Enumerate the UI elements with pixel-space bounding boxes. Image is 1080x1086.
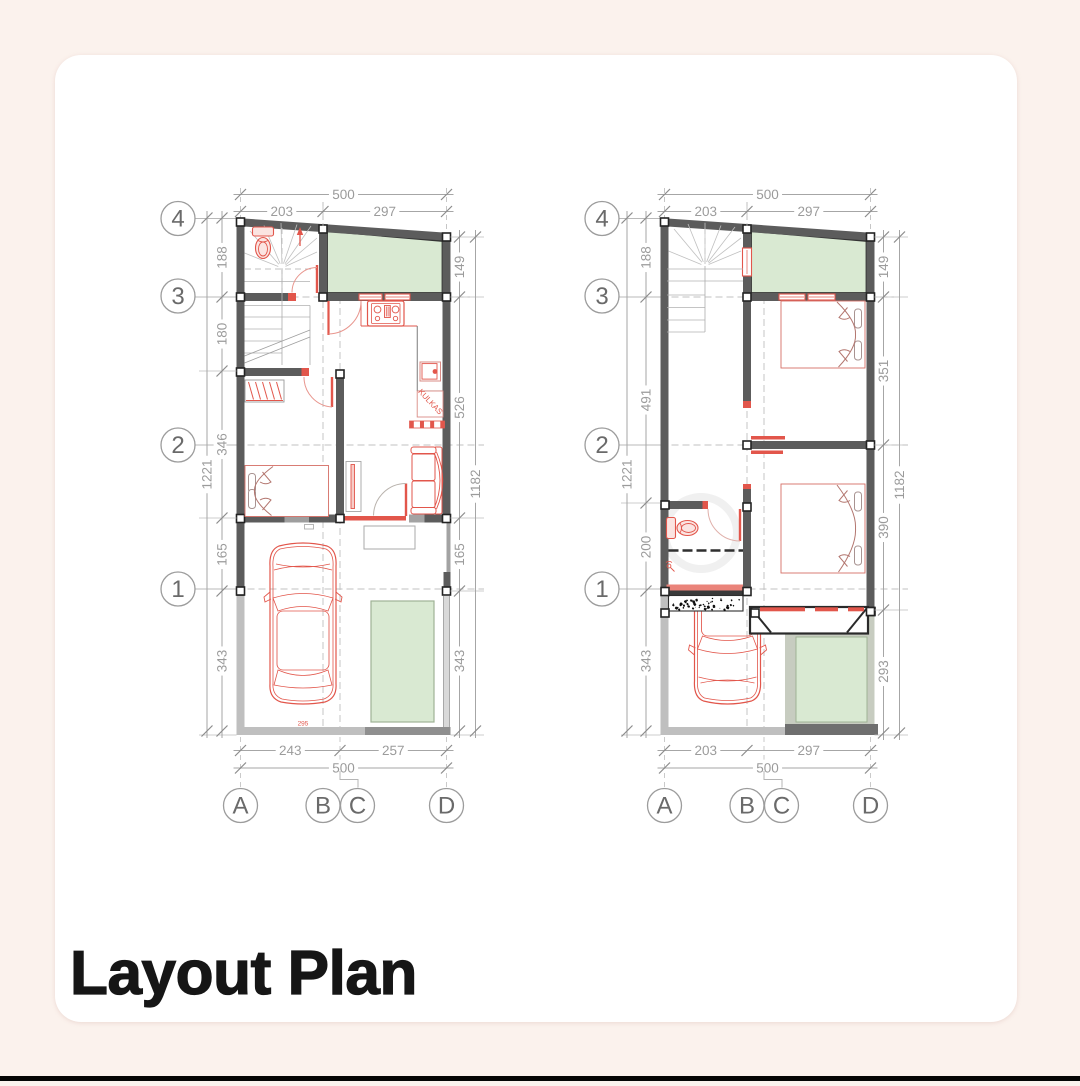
svg-text:500: 500	[332, 187, 355, 202]
svg-text:3: 3	[595, 283, 608, 310]
svg-text:B: B	[739, 793, 755, 820]
svg-text:200: 200	[638, 536, 653, 559]
svg-text:3: 3	[171, 283, 184, 310]
svg-text:1221: 1221	[619, 459, 634, 489]
svg-text:C: C	[773, 793, 790, 820]
svg-text:203: 203	[694, 743, 717, 758]
svg-text:A: A	[232, 793, 248, 820]
svg-text:297: 297	[797, 743, 820, 758]
svg-text:346: 346	[214, 433, 229, 456]
svg-text:500: 500	[332, 760, 355, 775]
svg-text:149: 149	[452, 256, 467, 279]
svg-text:257: 257	[382, 743, 405, 758]
svg-text:203: 203	[694, 204, 717, 219]
svg-text:293: 293	[876, 660, 891, 683]
svg-text:188: 188	[638, 246, 653, 269]
svg-text:1182: 1182	[892, 470, 907, 499]
svg-text:343: 343	[638, 650, 653, 673]
svg-text:1: 1	[595, 576, 608, 603]
svg-text:390: 390	[876, 516, 891, 539]
svg-text:297: 297	[373, 204, 396, 219]
svg-text:1: 1	[171, 576, 184, 603]
svg-text:297: 297	[797, 204, 820, 219]
svg-text:4: 4	[171, 206, 184, 233]
svg-text:4: 4	[595, 206, 608, 233]
svg-text:203: 203	[270, 204, 293, 219]
svg-text:C: C	[349, 793, 366, 820]
svg-text:2: 2	[171, 432, 184, 459]
svg-text:500: 500	[756, 187, 779, 202]
svg-text:295: 295	[298, 721, 309, 728]
svg-text:180: 180	[214, 323, 229, 346]
svg-text:D: D	[862, 793, 879, 820]
svg-text:351: 351	[876, 360, 891, 383]
svg-text:343: 343	[452, 650, 467, 673]
svg-text:1221: 1221	[199, 459, 214, 489]
svg-text:165: 165	[452, 543, 467, 566]
svg-text:526: 526	[452, 396, 467, 419]
svg-text:188: 188	[214, 246, 229, 269]
svg-text:A: A	[656, 793, 672, 820]
svg-text:149: 149	[876, 256, 891, 279]
svg-text:2: 2	[595, 432, 608, 459]
svg-text:343: 343	[214, 650, 229, 673]
svg-text:165: 165	[214, 543, 229, 566]
svg-text:500: 500	[756, 760, 779, 775]
svg-text:1182: 1182	[468, 469, 483, 498]
svg-text:B: B	[315, 793, 331, 820]
svg-text:243: 243	[279, 743, 302, 758]
svg-text:491: 491	[638, 389, 653, 412]
svg-text:D: D	[438, 793, 455, 820]
